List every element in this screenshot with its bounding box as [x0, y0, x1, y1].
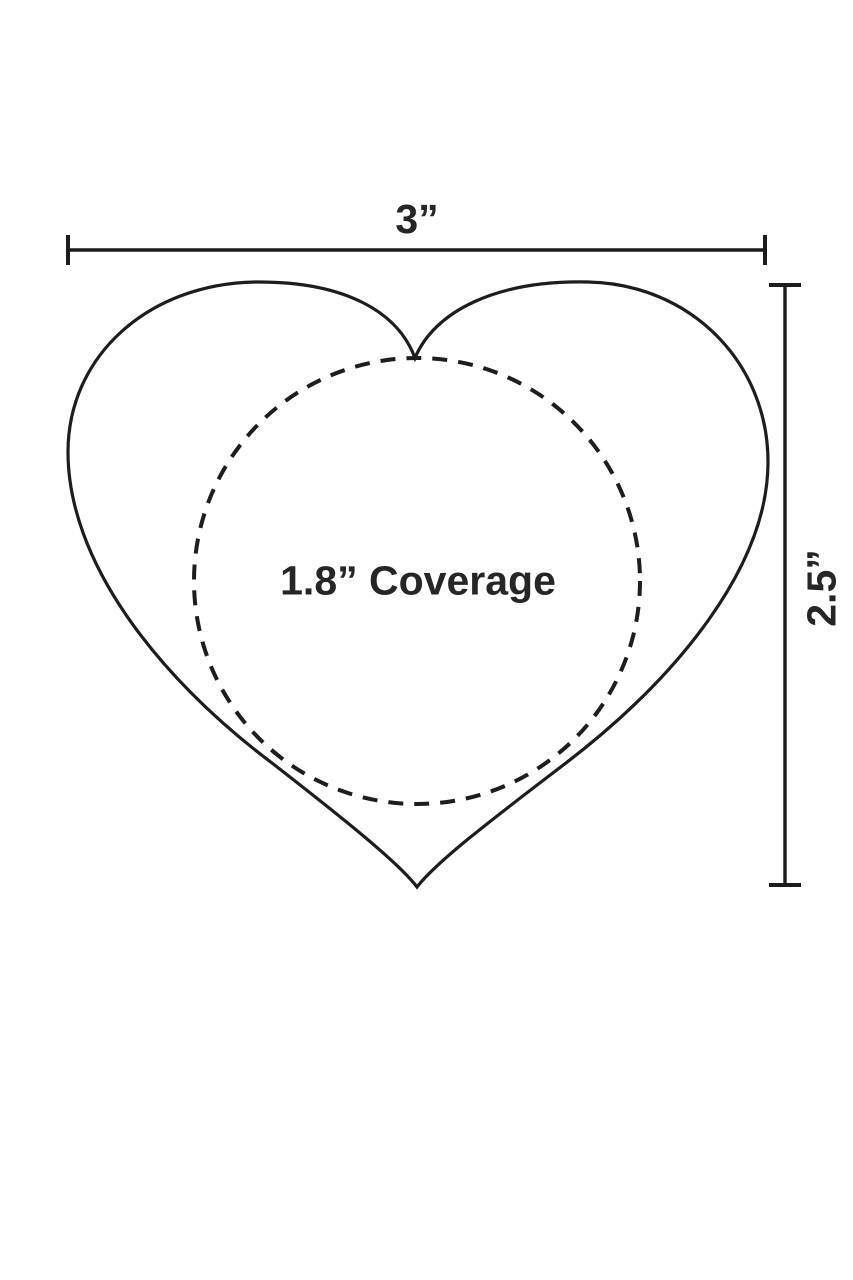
- heart-dimension-diagram: [0, 0, 853, 1280]
- height-dimension-line: [769, 285, 801, 885]
- diagram-canvas: 3” 2.5” 1.8” Coverage: [0, 0, 853, 1280]
- height-label: 2.5”: [799, 549, 846, 627]
- width-label: 3”: [0, 196, 834, 243]
- coverage-label: 1.8” Coverage: [280, 558, 556, 605]
- width-label-text: 3”: [395, 196, 438, 243]
